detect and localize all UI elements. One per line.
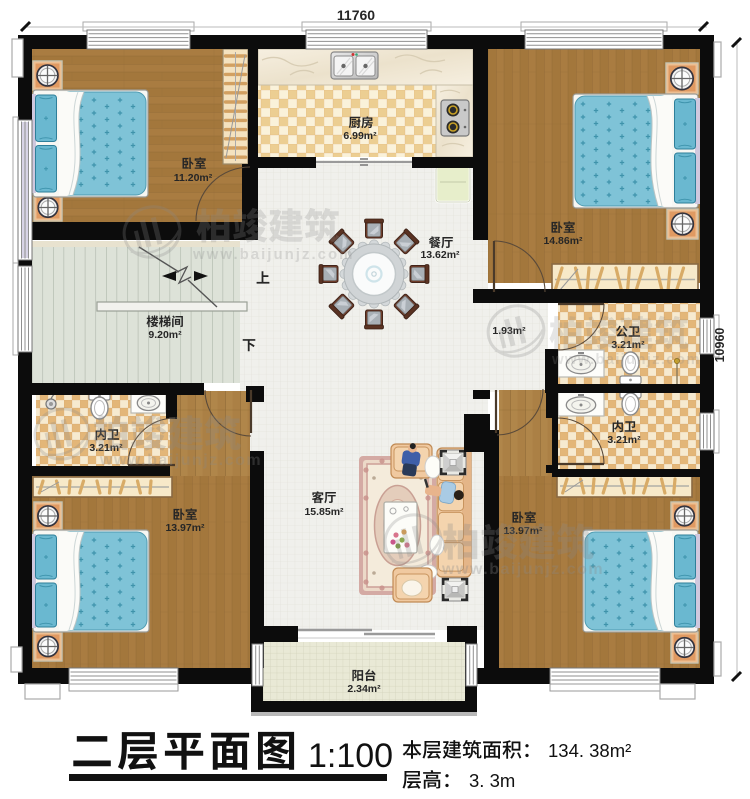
svg-text:13.97m²: 13.97m² [165, 522, 205, 534]
svg-text:2.34m²: 2.34m² [347, 683, 381, 695]
svg-text:www.baijunjz.com: www.baijunjz.com [441, 561, 604, 578]
svg-text:10960: 10960 [713, 328, 727, 363]
svg-text:15.85m²: 15.85m² [304, 506, 344, 518]
svg-text:134. 38m²: 134. 38m² [548, 740, 631, 761]
svg-text:9.20m²: 9.20m² [148, 329, 182, 341]
svg-text:13.62m²: 13.62m² [420, 249, 460, 261]
svg-text:www.baijunjz.com: www.baijunjz.com [551, 351, 701, 368]
svg-text:1:100: 1:100 [308, 737, 393, 775]
svg-text:3. 3m: 3. 3m [469, 770, 515, 791]
svg-text:www.baijunjz.com: www.baijunjz.com [192, 246, 354, 263]
svg-text:11.20m²: 11.20m² [174, 172, 213, 184]
svg-text:11760: 11760 [337, 7, 375, 23]
svg-text:14.86m²: 14.86m² [543, 235, 583, 247]
svg-text:3.21m²: 3.21m² [607, 434, 641, 446]
svg-text:www.baijunjz.com: www.baijunjz.com [99, 452, 262, 469]
svg-text:6.99m²: 6.99m² [343, 130, 377, 142]
